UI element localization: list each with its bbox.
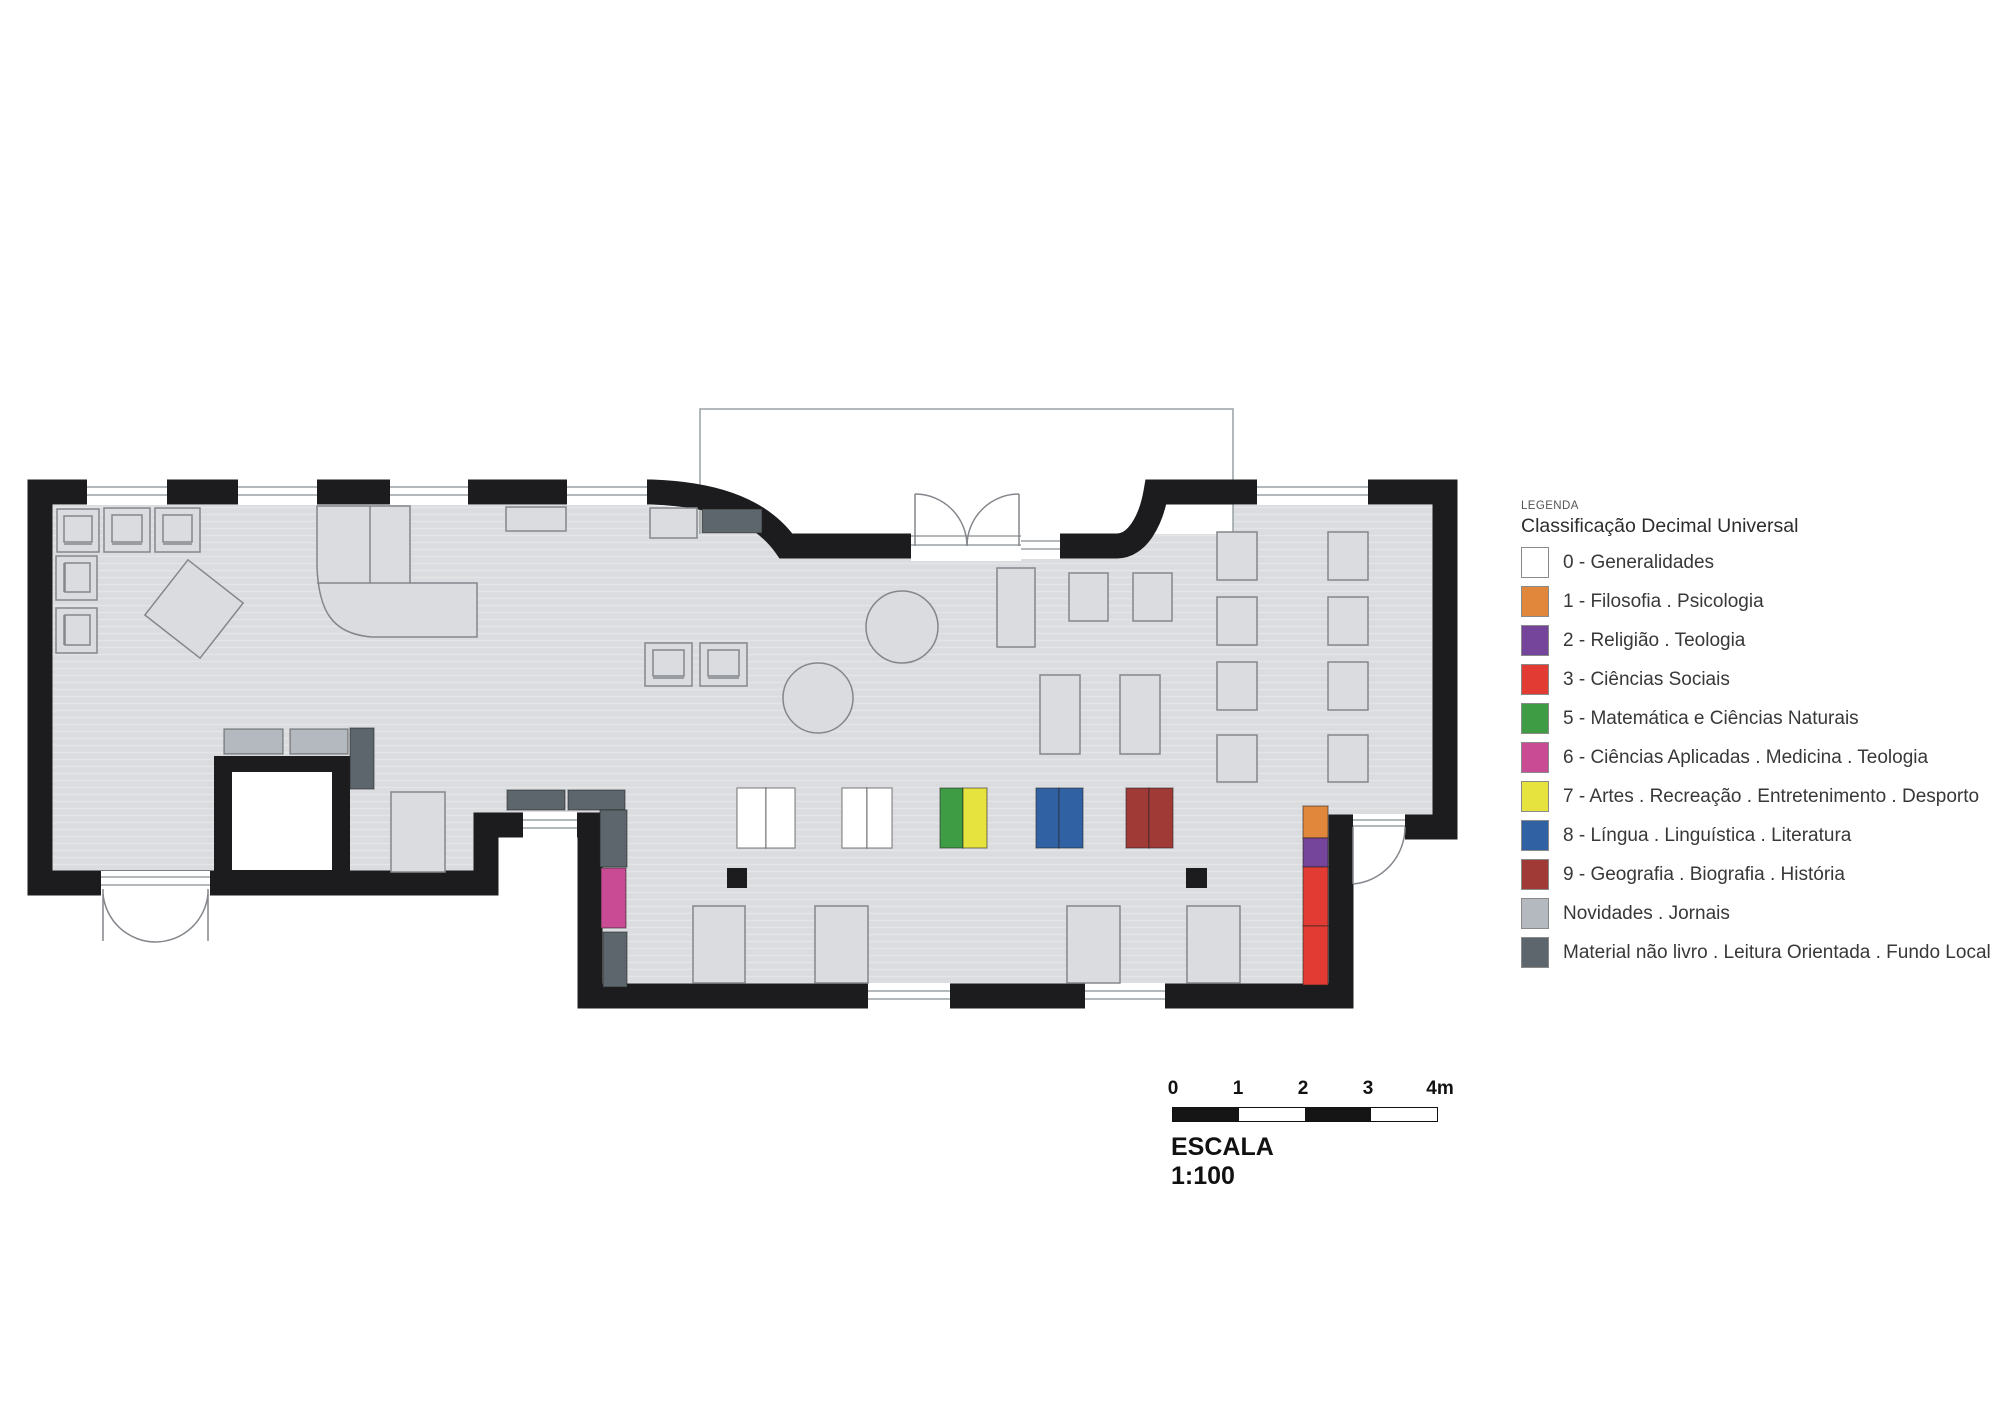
legend-swatch (1521, 781, 1549, 812)
shelf-ciencias-aplicadas (601, 868, 626, 928)
armchair (104, 508, 150, 552)
shelf-generalidades (737, 788, 766, 848)
armchair (155, 508, 200, 552)
door-swing-arc (156, 894, 208, 942)
shelf-geografia (1149, 788, 1173, 848)
shelf-material (568, 790, 625, 810)
legend-swatch (1521, 547, 1549, 578)
legend-rows: 0 - Generalidades 1 - Filosofia . Psicol… (1521, 547, 1991, 968)
legend-swatch (1521, 742, 1549, 773)
shelf-artes (963, 788, 987, 848)
legend-item: 6 - Ciências Aplicadas . Medicina . Teol… (1521, 742, 1991, 773)
table (1069, 573, 1108, 621)
legend-swatch (1521, 937, 1549, 968)
shelf-novidades (290, 729, 348, 754)
legend-item: 8 - Língua . Linguística . Literatura (1521, 820, 1991, 851)
scale-bar-segments (1172, 1107, 1438, 1122)
armchair (56, 608, 97, 653)
table (1067, 906, 1120, 983)
armchair (57, 509, 99, 552)
scale-segment (1305, 1108, 1371, 1121)
column (1186, 868, 1207, 888)
legend-swatch (1521, 664, 1549, 695)
page: LEGENDA Classificação Decimal Universal … (0, 0, 2000, 1414)
legend: LEGENDA Classificação Decimal Universal … (1521, 500, 1991, 968)
shelf-material (600, 810, 627, 867)
column (727, 868, 747, 888)
legend-item: 2 - Religião . Teologia (1521, 625, 1991, 656)
legend-label: 9 - Geografia . Biografia . História (1549, 864, 1845, 886)
shelf-lingua (1059, 788, 1083, 848)
table (1217, 662, 1257, 710)
table (1187, 906, 1240, 983)
scale-tick: 3 (1363, 1078, 1374, 1100)
legend-title: Classificação Decimal Universal (1521, 515, 1991, 538)
legend-label: Material não livro . Leitura Orientada .… (1549, 942, 1991, 964)
legend-item: Material não livro . Leitura Orientada .… (1521, 937, 1991, 968)
shelf-material (603, 932, 627, 987)
table (1217, 532, 1257, 580)
scale-tick: 4m (1426, 1078, 1453, 1100)
scale-segment (1239, 1108, 1305, 1121)
shelf-novidades (224, 729, 283, 754)
table (1217, 735, 1257, 782)
legend-swatch (1521, 820, 1549, 851)
table (1133, 573, 1172, 621)
shelf-lingua (1036, 788, 1059, 848)
legend-item: 0 - Generalidades (1521, 547, 1991, 578)
shelf-matematica (940, 788, 963, 848)
side-entrance-door (101, 871, 210, 942)
window (1257, 479, 1368, 505)
legend-heading: LEGENDA (1521, 500, 1991, 512)
scale-label: ESCALA 1:100 (1171, 1133, 1273, 1191)
legend-item: Novidades . Jornais (1521, 898, 1991, 929)
scale-segment (1371, 1108, 1437, 1121)
legend-item: 5 - Matemática e Ciências Naturais (1521, 703, 1991, 734)
table (1328, 662, 1368, 710)
legend-label: 2 - Religião . Teologia (1549, 630, 1745, 652)
armchair (56, 556, 97, 600)
legend-label: 1 - Filosofia . Psicologia (1549, 591, 1764, 613)
legend-label: 8 - Língua . Linguística . Literatura (1549, 825, 1851, 847)
legend-label: 7 - Artes . Recreação . Entretenimento .… (1549, 786, 1979, 808)
table (1120, 675, 1160, 754)
window (868, 983, 950, 1009)
scale-segment (1173, 1108, 1239, 1121)
cabinet (650, 508, 697, 538)
window (87, 479, 167, 505)
shelf-material (507, 790, 565, 810)
table (1040, 675, 1080, 754)
legend-label: 6 - Ciências Aplicadas . Medicina . Teol… (1549, 747, 1928, 769)
table (1328, 735, 1368, 782)
legend-item: 9 - Geografia . Biografia . História (1521, 859, 1991, 890)
shelf-geografia (1126, 788, 1149, 848)
table (997, 568, 1035, 647)
window (390, 479, 468, 505)
cabinet (506, 507, 566, 531)
window (238, 479, 317, 505)
right-door (1353, 814, 1405, 884)
table (693, 906, 745, 983)
legend-label: 3 - Ciências Sociais (1549, 669, 1730, 691)
legend-label: 0 - Generalidades (1549, 552, 1714, 574)
legend-item: 7 - Artes . Recreação . Entretenimento .… (1521, 781, 1991, 812)
legend-swatch (1521, 898, 1549, 929)
door-swing-arc (103, 894, 156, 942)
legend-swatch (1521, 703, 1549, 734)
table (815, 906, 868, 983)
legend-swatch (1521, 586, 1549, 617)
legend-item: 3 - Ciências Sociais (1521, 664, 1991, 695)
legend-item: 1 - Filosofia . Psicologia (1521, 586, 1991, 617)
legend-label: Novidades . Jornais (1549, 903, 1730, 925)
legend-swatch (1521, 625, 1549, 656)
shelf-generalidades (842, 788, 867, 848)
armchair (700, 643, 747, 686)
round-table (866, 591, 938, 663)
shelf-material (350, 728, 374, 789)
window (1019, 533, 1060, 559)
window (1085, 983, 1165, 1009)
table (1328, 532, 1368, 580)
scale-tick: 2 (1298, 1078, 1309, 1100)
shelf-ciencias-sociais (1303, 867, 1328, 926)
shelf-ciencias-sociais (1303, 926, 1328, 985)
window (567, 479, 647, 505)
shaft-room (214, 756, 350, 889)
table (1217, 597, 1257, 645)
table (1328, 597, 1368, 645)
shelf-religiao (1303, 838, 1328, 867)
table (391, 792, 445, 872)
shelf-material (702, 509, 762, 533)
window (523, 812, 577, 838)
legend-swatch (1521, 859, 1549, 890)
scale-tick: 0 (1168, 1078, 1179, 1100)
shelf-filosofia (1303, 806, 1328, 838)
shelf-generalidades (766, 788, 795, 848)
shelf-generalidades (867, 788, 892, 848)
legend-label: 5 - Matemática e Ciências Naturais (1549, 708, 1859, 730)
round-table (783, 663, 853, 733)
scale-tick: 1 (1233, 1078, 1244, 1100)
armchair (645, 643, 692, 686)
